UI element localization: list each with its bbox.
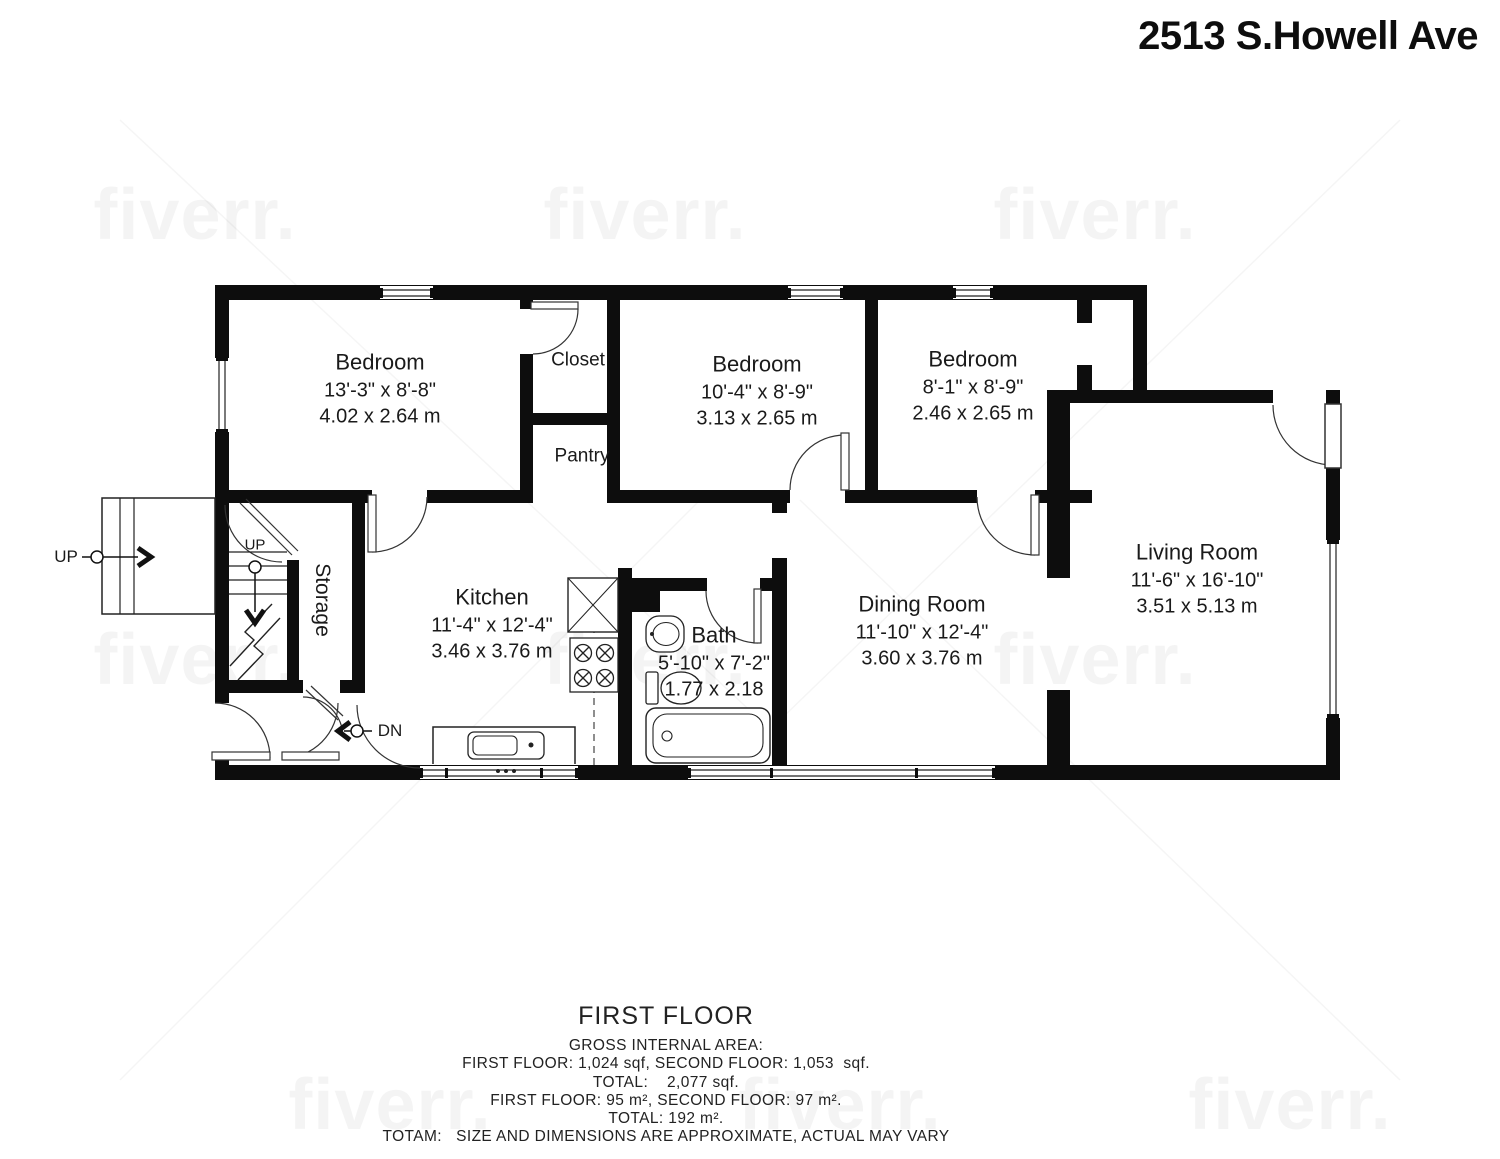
footer-line: TOTAL: 2,077 sqf. <box>316 1074 1016 1092</box>
door-leaf-diagonal <box>306 690 338 720</box>
door-arc <box>215 703 270 758</box>
down-marker <box>351 725 363 737</box>
room-label-living-room: Living Room 11'-6" x 16'-10" 3.51 x 5.13… <box>1131 539 1264 620</box>
footer-line: FIRST FLOOR: 95 m², SECOND FLOOR: 97 m². <box>316 1092 1016 1110</box>
exterior-stairs <box>102 498 215 614</box>
room-label-closet: Closet <box>551 349 605 374</box>
footer-line: GROSS INTERNAL AREA: <box>316 1037 1016 1055</box>
window <box>688 766 995 779</box>
room-label-bedroom-3: Bedroom 8'-1" x 8'-9" 2.46 x 2.65 m <box>912 346 1033 427</box>
floorplan-canvas: fiverr. fiverr. fiverr. fiverr. fiverr. … <box>0 0 1500 1159</box>
footer-line: TOTAM: SIZE AND DIMENSIONS ARE APPROXIMA… <box>316 1128 1016 1146</box>
door-arc <box>283 703 338 758</box>
room-label-storage: Storage <box>310 563 334 637</box>
footer: FIRST FLOOR GROSS INTERNAL AREA: FIRST F… <box>316 1002 1016 1147</box>
door-arc <box>790 435 845 490</box>
door-leaf <box>531 302 578 309</box>
stairs <box>102 498 287 680</box>
window <box>1326 540 1340 718</box>
fridge <box>568 578 618 632</box>
door-arc <box>372 497 427 552</box>
room-label-bath: Bath 5'-10" x 7'-2" 1.77 x 2.18 <box>658 622 770 703</box>
up-outside-label: UP <box>54 547 78 567</box>
window <box>953 286 993 299</box>
up-stairs-marker <box>249 561 261 573</box>
door-leaf <box>282 752 339 760</box>
window <box>788 286 843 299</box>
window <box>380 286 433 299</box>
floorplan-drawing <box>0 0 1500 1159</box>
door-leaf <box>841 433 849 490</box>
window <box>215 358 229 432</box>
door-leaf <box>368 495 376 552</box>
door-leaf <box>1325 404 1341 468</box>
bathtub <box>646 708 770 763</box>
door-leaf <box>212 752 270 760</box>
door-arc <box>533 309 578 354</box>
room-label-bedroom-1: Bedroom 13'-3" x 8'-8" 4.02 x 2.64 m <box>319 349 440 430</box>
floor-title: FIRST FLOOR <box>316 1002 1016 1031</box>
up-outside-marker <box>91 551 103 563</box>
up-stairs-label: UP <box>245 537 266 554</box>
door-arc <box>1273 405 1333 465</box>
down-label: DN <box>378 721 403 741</box>
door-arc <box>977 497 1035 555</box>
room-label-pantry: Pantry <box>555 445 610 470</box>
room-label-bedroom-2: Bedroom 10'-4" x 8'-9" 3.13 x 2.65 m <box>696 351 817 432</box>
door-leaf <box>1031 495 1039 555</box>
stair-break-mask <box>230 604 280 680</box>
stove <box>570 638 618 692</box>
footer-line: TOTAL: 192 m². <box>316 1110 1016 1128</box>
room-label-kitchen: Kitchen 11'-4" x 12'-4" 3.46 x 3.76 m <box>431 584 553 665</box>
footer-line: FIRST FLOOR: 1,024 sqf, SECOND FLOOR: 1,… <box>316 1055 1016 1073</box>
room-label-dining-room: Dining Room 11'-10" x 12'-4" 3.60 x 3.76… <box>856 591 989 672</box>
door-leaf-diagonal <box>311 686 343 716</box>
